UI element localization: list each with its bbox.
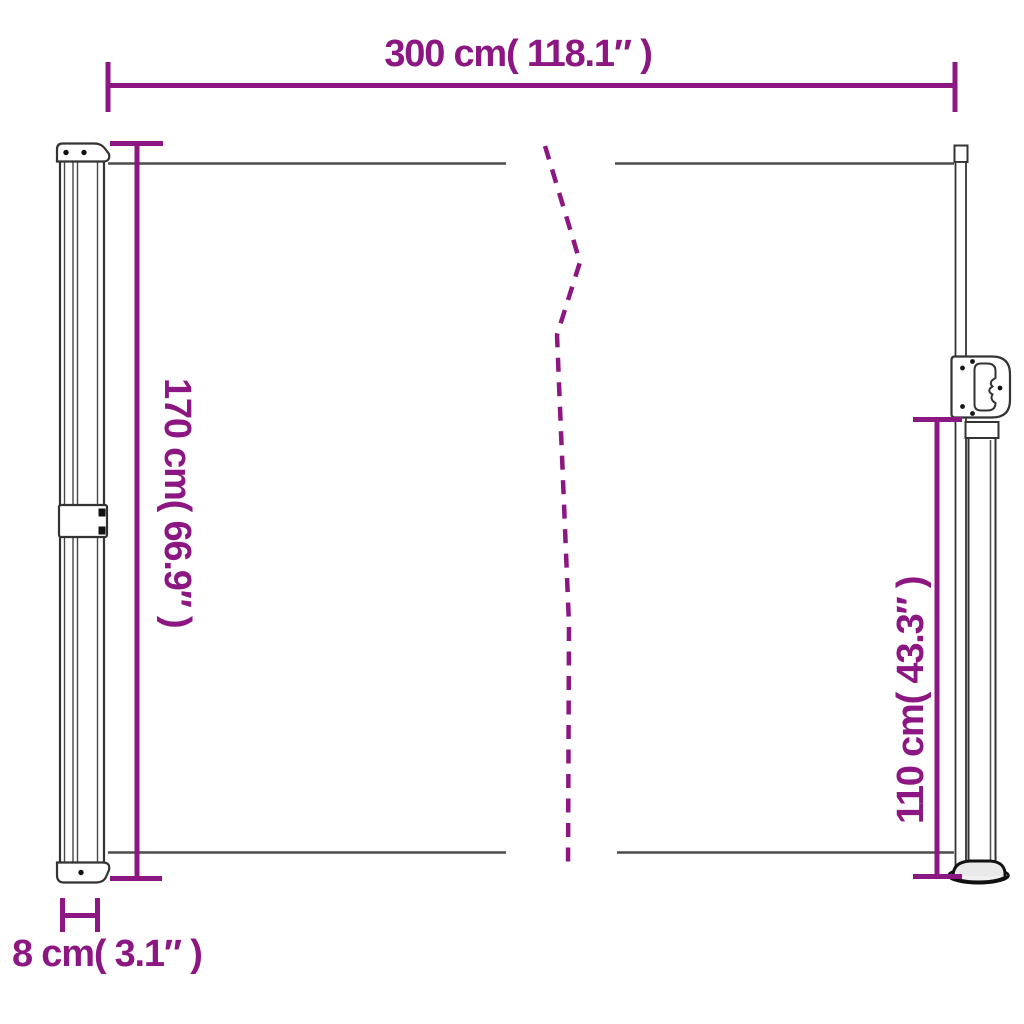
handle-screw-5 (970, 411, 975, 416)
cassette-post (57, 144, 109, 883)
pull-post-top-cap (955, 146, 968, 163)
post-outer-tube (969, 438, 996, 862)
left-height-label: 170 cm( 66.9″ ) (155, 378, 197, 627)
dim-width-line (108, 83, 955, 88)
wall-bracket-clip-2 (99, 527, 106, 535)
cassette-bottom-screw (78, 870, 83, 875)
pull-post-upper-tube (956, 162, 967, 865)
dim-left-tick-top (110, 141, 163, 146)
break-line (545, 146, 580, 870)
handle-screw-1 (960, 366, 965, 371)
fabric-break-dashed-line (545, 146, 580, 870)
cassette-top-screw-1 (63, 150, 68, 155)
dim-depth-tick-right (95, 898, 100, 932)
right-height-label: 110 cm( 43.3″ ) (891, 577, 933, 824)
dim-left-line (135, 143, 140, 880)
handle-screw-4 (960, 404, 965, 409)
fabric-panel-edges (108, 164, 954, 853)
dimension-depth (60, 898, 100, 932)
total-width-label: 300 cm( 118.1″ ) (90, 34, 946, 76)
dimension-diagram: 300 cm( 118.1″ ) 170 cm( 66.9″ ) 110 cm(… (0, 0, 1024, 1024)
handle-screw-3 (998, 386, 1003, 391)
post-foot-arch (953, 861, 1005, 876)
dim-left-tick-bottom (110, 876, 162, 881)
handle-grip-cutout (975, 364, 996, 411)
post-collar (966, 422, 999, 438)
dim-right-tick-top (913, 417, 962, 422)
handle-screw-2 (970, 359, 975, 364)
depth-label: 8 cm( 3.1″ ) (12, 934, 202, 976)
dim-depth-tick-left (60, 898, 65, 932)
dim-right-tick-bottom (913, 874, 962, 879)
dim-depth-line (62, 913, 100, 918)
wall-bracket-clip-1 (99, 509, 106, 517)
dim-right-line (935, 419, 940, 878)
pull-post (949, 146, 1011, 884)
awning-line-drawing (0, 0, 1024, 1024)
dim-width-tick-right (953, 62, 958, 112)
cassette-top-screw-2 (81, 150, 86, 155)
